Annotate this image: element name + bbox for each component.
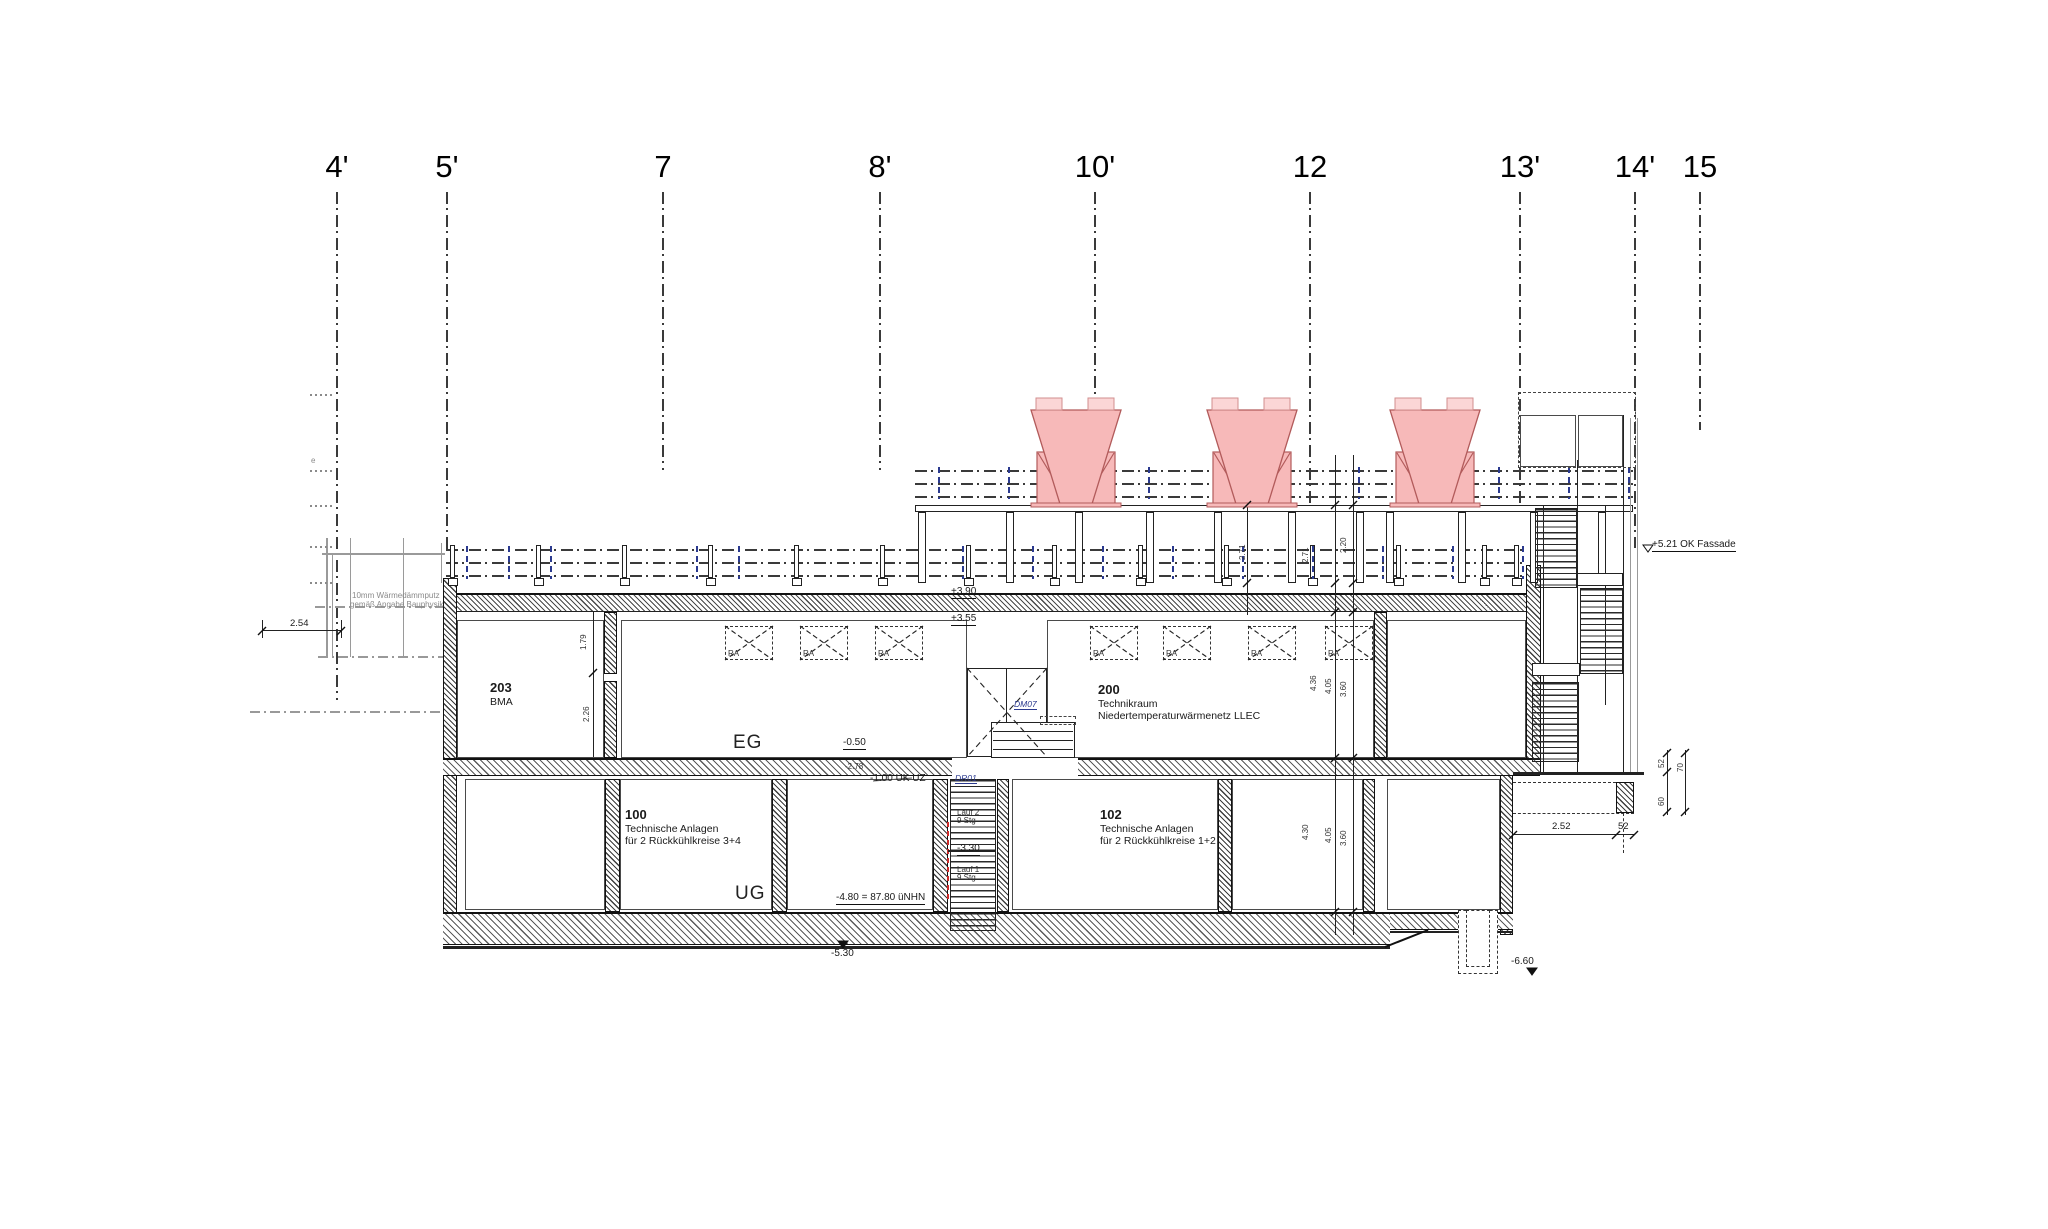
level-annotation: -0.50: [843, 737, 866, 750]
level-annotation: +5.21 OK Fassade: [1652, 539, 1736, 552]
cooling-towers-and-marks: [0, 0, 2048, 1229]
dim-tick: [1349, 579, 1357, 587]
dim-tick: [1509, 831, 1517, 839]
dim-tick: [1349, 908, 1357, 916]
dim-tick: [1681, 808, 1689, 816]
dimension-value: 2.54: [290, 619, 309, 629]
dim-tick: [1243, 579, 1251, 587]
dim-tick: [1331, 754, 1339, 762]
dimension-value-rotated: 3.60: [1340, 830, 1349, 846]
dimension-value-rotated: 4.30: [1302, 824, 1311, 840]
cooling-tower-fan-stub: [1036, 398, 1062, 410]
dim-tick: [1331, 579, 1339, 587]
room-name: für 2 Rückkühlkreise 3+4: [625, 836, 741, 848]
duct-label: RA: [1166, 650, 1177, 659]
dim-tick: [1663, 749, 1671, 757]
dimension-value-rotated: 4.05: [1325, 827, 1334, 843]
dim-tick: [1331, 908, 1339, 916]
dim-tick: [258, 627, 266, 635]
dimension-value: 52: [1618, 822, 1629, 832]
dim-tick: [1349, 608, 1357, 616]
level-triangle-filled: [838, 941, 848, 948]
dimension-value-rotated: 2.26: [583, 706, 592, 722]
room-name: Technikraum: [1098, 699, 1158, 711]
dim-tick: [1681, 749, 1689, 757]
room-name: für 2 Rückkühlkreise 1+2: [1100, 836, 1216, 848]
dimension-value-rotated: 2.71: [1239, 544, 1248, 560]
dim-tick: [337, 627, 345, 635]
cooling-tower-fan-stub: [1212, 398, 1238, 410]
floor-label: EG: [733, 733, 762, 754]
cooling-tower-fan-stub: [1395, 398, 1421, 410]
level-annotation: +3.55: [951, 613, 976, 626]
cooling-tower-fan-stub: [1264, 398, 1290, 410]
level-triangle-filled: [1527, 968, 1537, 975]
room-number: 200: [1098, 683, 1120, 697]
level-annotation: -5.30: [831, 948, 854, 959]
duct-label: RA: [803, 650, 814, 659]
dimension-value-rotated: 1.79: [580, 634, 589, 650]
room-number: 100: [625, 808, 647, 822]
duct-label: RA: [1251, 650, 1262, 659]
duct-label: RA: [728, 650, 739, 659]
stair-label: 9 Stg: [957, 874, 976, 883]
dim-tick: [589, 669, 597, 677]
duct-label: RA: [1328, 650, 1339, 659]
duct-label: RA: [878, 650, 889, 659]
room-name: BMA: [490, 697, 513, 709]
dim-tick: [1663, 808, 1671, 816]
dim-tick: [1331, 501, 1339, 509]
room-number: 203: [490, 681, 512, 695]
slab-slope-line: [1385, 930, 1428, 947]
dimension-value-rotated: 3.60: [1340, 681, 1349, 697]
room-number: 102: [1100, 808, 1122, 822]
stair-label: DM07: [1014, 700, 1037, 710]
dimension-value-rotated: 52: [1658, 759, 1667, 768]
stair-label: 9 Stg: [957, 817, 976, 826]
cooling-tower-fan-stub: [1447, 398, 1473, 410]
cooling-tower-fan-stub: [1088, 398, 1114, 410]
level-annotation: +3.90: [951, 586, 976, 599]
building-section-drawing: 4'5'78'10'1213'14'15 RARARARARARARA203BM…: [0, 0, 2048, 1229]
dim-tick: [1349, 754, 1357, 762]
dimension-value: 2.52: [1552, 822, 1571, 832]
level-annotation: -3.30: [957, 843, 980, 856]
cooling-tower-sill: [1390, 503, 1480, 507]
dimension-value-rotated: 60: [1658, 797, 1667, 806]
stair-label: DR01: [955, 774, 977, 784]
dim-tick: [1663, 768, 1671, 776]
level-annotation: -6.60: [1511, 956, 1534, 967]
floor-label: UG: [735, 884, 766, 905]
duct-label: RA: [1093, 650, 1104, 659]
level-annotation: -1.00 UK UZ: [870, 773, 926, 784]
dimension-value-rotated: 2.20: [1340, 537, 1349, 553]
level-annotation: -4.80 = 87.80 üNHN: [836, 892, 925, 905]
room-name: Niedertemperaturwärmenetz LLEC: [1098, 711, 1260, 723]
dim-tick: [1331, 608, 1339, 616]
material-note: e: [311, 457, 315, 466]
cooling-tower-sill: [1207, 503, 1297, 507]
level-annotation: -2.78: [845, 763, 863, 772]
room-name: Technische Anlagen: [625, 824, 718, 836]
dimension-value-rotated: 4.05: [1325, 678, 1334, 694]
dim-tick: [1349, 501, 1357, 509]
material-note: gemäß Angabe Bauphysik: [350, 601, 443, 610]
dim-tick: [1630, 831, 1638, 839]
cooling-tower-sill: [1031, 503, 1121, 507]
dimension-value-rotated: 2.71: [1302, 547, 1311, 563]
dimension-value-rotated: 4.36: [1310, 675, 1319, 691]
room-name: Technische Anlagen: [1100, 824, 1193, 836]
dimension-value-rotated: 70: [1677, 763, 1686, 772]
